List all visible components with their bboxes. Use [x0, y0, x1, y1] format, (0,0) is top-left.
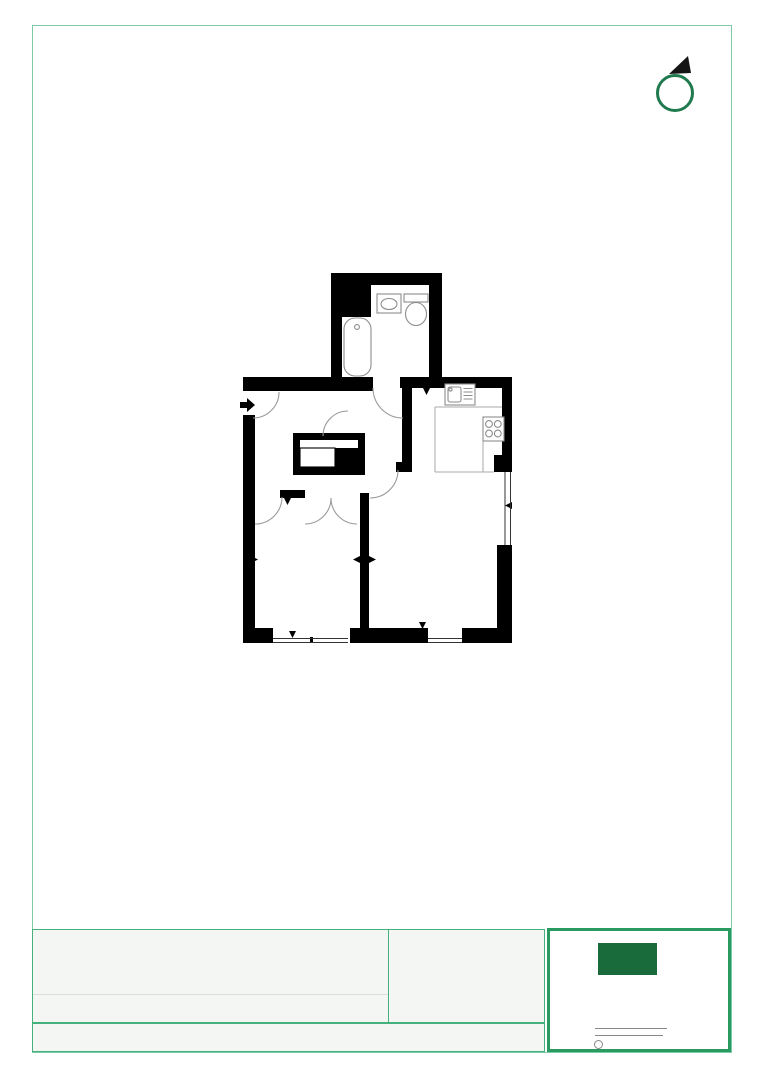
living-door-swing [370, 470, 398, 498]
closet-door-swing-right [331, 498, 357, 524]
marker-mid-wall-left [353, 556, 360, 563]
closet-wall-bottom [293, 467, 365, 475]
wall-hall-kitchen [402, 388, 412, 464]
windows [273, 472, 511, 643]
wall-bathroom-right [429, 273, 442, 388]
marker-window-left [289, 631, 296, 638]
logo-box [547, 928, 731, 1052]
wall-bottom-left [243, 628, 273, 643]
compass-ring-icon [658, 76, 693, 111]
wall-bathroom-left [331, 273, 342, 391]
signature-circle-icon [594, 1040, 603, 1049]
wall-right-pier [494, 455, 512, 472]
bedroom-door-swing [255, 497, 282, 524]
wall-hall-bedroom [280, 490, 305, 498]
wall-bottom-right [462, 628, 510, 643]
closet-black-cell [335, 448, 358, 467]
north-pointer-icon [669, 56, 691, 74]
marker-window-mid [419, 622, 426, 629]
title-table-left-upper-row [33, 930, 388, 995]
wall-middle-divider [360, 493, 369, 633]
title-table-left-cell [33, 930, 389, 1022]
north-arrow [645, 52, 705, 112]
entry-door-swing [253, 392, 279, 418]
toilet-bowl [406, 303, 427, 326]
closet-upper-door-swing [323, 411, 348, 436]
walls [240, 273, 512, 643]
entrance-arrow-icon [240, 398, 255, 412]
stove [483, 417, 504, 441]
marker-bedroom-door [284, 498, 291, 505]
signature-line-2 [595, 1035, 663, 1036]
sheet-page [0, 0, 764, 1080]
closet-white-cell [300, 448, 335, 467]
bathroom-door-swing [373, 388, 403, 418]
closet-door-swing-left [305, 498, 331, 524]
title-strip [32, 1023, 545, 1052]
wall-left [243, 415, 255, 643]
marker-kitchen-door [423, 388, 430, 395]
marker-mid-wall-right [369, 556, 376, 563]
wall-right-upper [502, 377, 512, 455]
title-table [32, 929, 545, 1023]
logo [598, 943, 657, 975]
signature-line-1 [595, 1028, 667, 1029]
title-table-left-lower-row [33, 995, 388, 1022]
title-table-right-cell [389, 930, 544, 1022]
wall-hallway-top [243, 377, 373, 391]
bathtub [344, 318, 371, 376]
closet-wall-top [293, 433, 365, 440]
floor-plan [240, 270, 516, 648]
toilet-tank [404, 294, 428, 302]
